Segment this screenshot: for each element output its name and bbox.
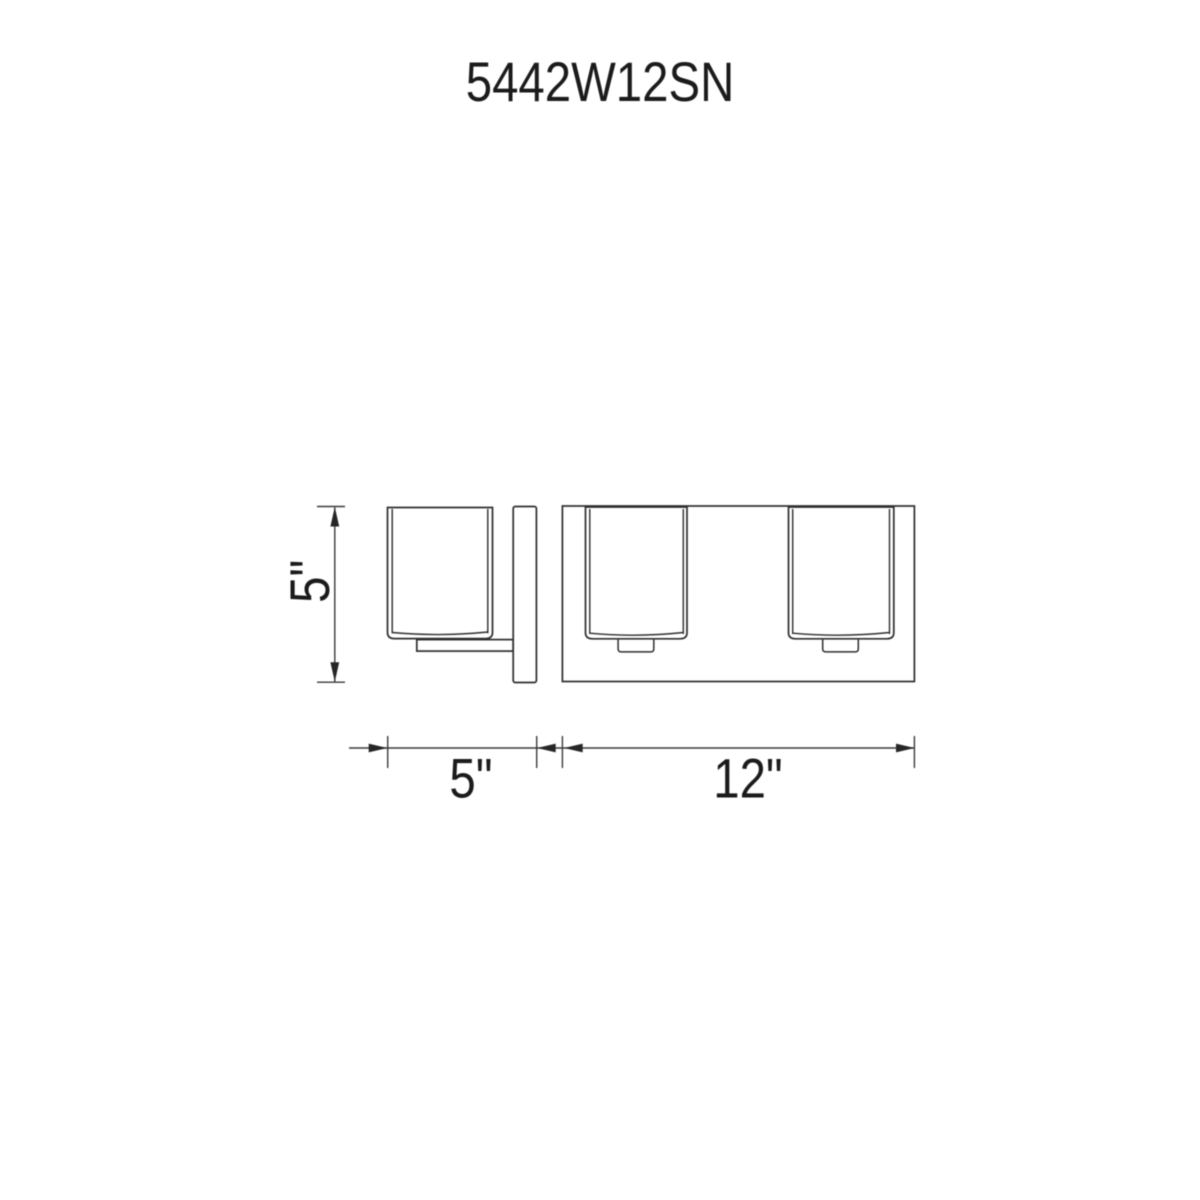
svg-text:5442W12SN: 5442W12SN	[466, 50, 735, 113]
svg-text:5": 5"	[449, 747, 492, 810]
svg-text:12": 12"	[713, 747, 783, 810]
svg-text:5": 5"	[278, 560, 341, 603]
